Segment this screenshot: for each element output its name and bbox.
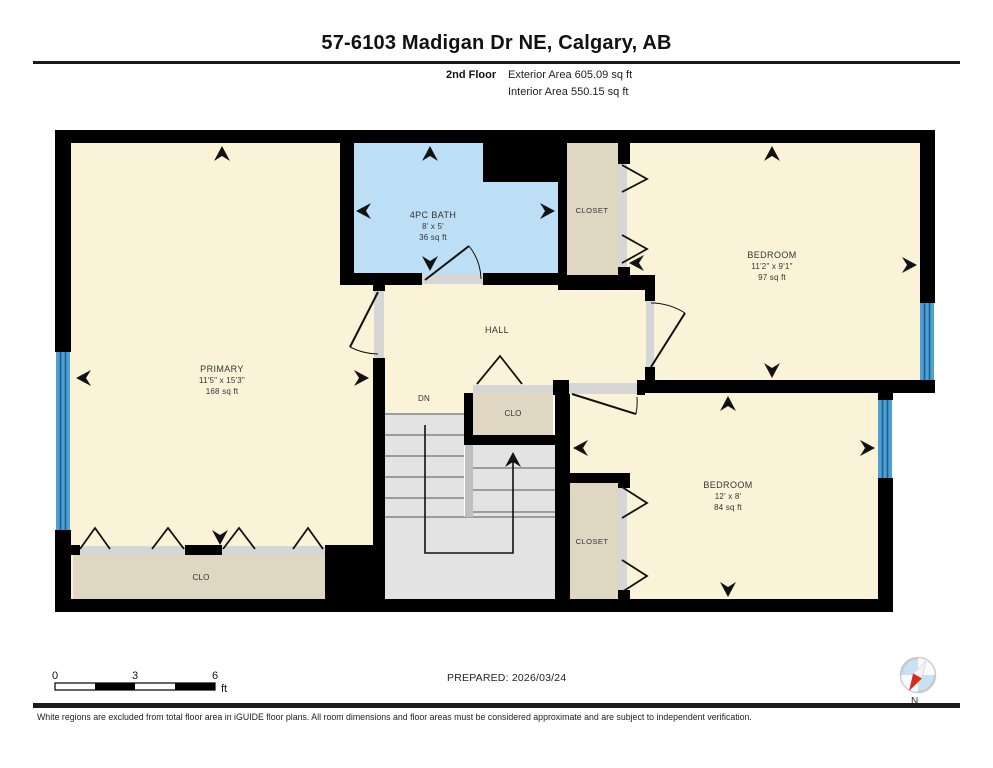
scale-tick-0: 0	[52, 670, 58, 682]
bath-label: 4PC BATH	[410, 210, 457, 220]
window-right-bottom	[878, 400, 892, 478]
floorplan-page: 57-6103 Madigan Dr NE, Calgary, AB 2nd F…	[0, 0, 993, 768]
bedroom-bottom-label: BEDROOM	[703, 480, 752, 490]
compass-icon: N	[901, 658, 935, 707]
floorplan-drawing: 4PC BATH 8' x 5' 36 sq ft CLOSET BEDROOM…	[0, 0, 993, 768]
bedroom-top-area: 97 sq ft	[758, 273, 786, 282]
bedroom-top-dims: 11'2" x 9'1"	[751, 262, 792, 271]
primary-area: 168 sq ft	[206, 387, 239, 396]
stairs-dn-label: DN	[418, 394, 430, 403]
closet-bottom-label: CLOSET	[576, 537, 609, 546]
primary-dims: 11'5" x 15'3"	[199, 376, 245, 385]
window-right-top	[920, 303, 934, 380]
clo-left-label: CLO	[192, 573, 209, 582]
bedroom-bottom-dims: 12' x 8'	[715, 492, 742, 501]
prepared-date: PREPARED: 2026/03/24	[447, 672, 566, 684]
hall-label: HALL	[485, 325, 509, 335]
primary-label: PRIMARY	[200, 364, 244, 374]
bath-dims: 8' x 5'	[422, 222, 444, 231]
scale-bar: 0 3 6 ft	[52, 670, 227, 695]
scale-tick-3: 3	[132, 670, 138, 682]
stair-lower-landing	[385, 517, 555, 599]
footer-divider	[33, 703, 960, 708]
closet-top-label: CLOSET	[576, 206, 609, 215]
window-left	[56, 352, 70, 530]
scale-tick-6: 6	[212, 670, 218, 682]
bedroom-bottom-fill-b	[622, 390, 880, 602]
hall-fill	[378, 280, 650, 396]
bedroom-bottom-area: 84 sq ft	[714, 503, 742, 512]
disclaimer-text: White regions are excluded from total fl…	[37, 712, 752, 722]
bath-area: 36 sq ft	[419, 233, 447, 242]
clo-mid-label: CLO	[504, 409, 521, 418]
bedroom-top-label: BEDROOM	[747, 250, 796, 260]
stair-railing	[465, 438, 473, 517]
scale-unit: ft	[221, 683, 227, 695]
